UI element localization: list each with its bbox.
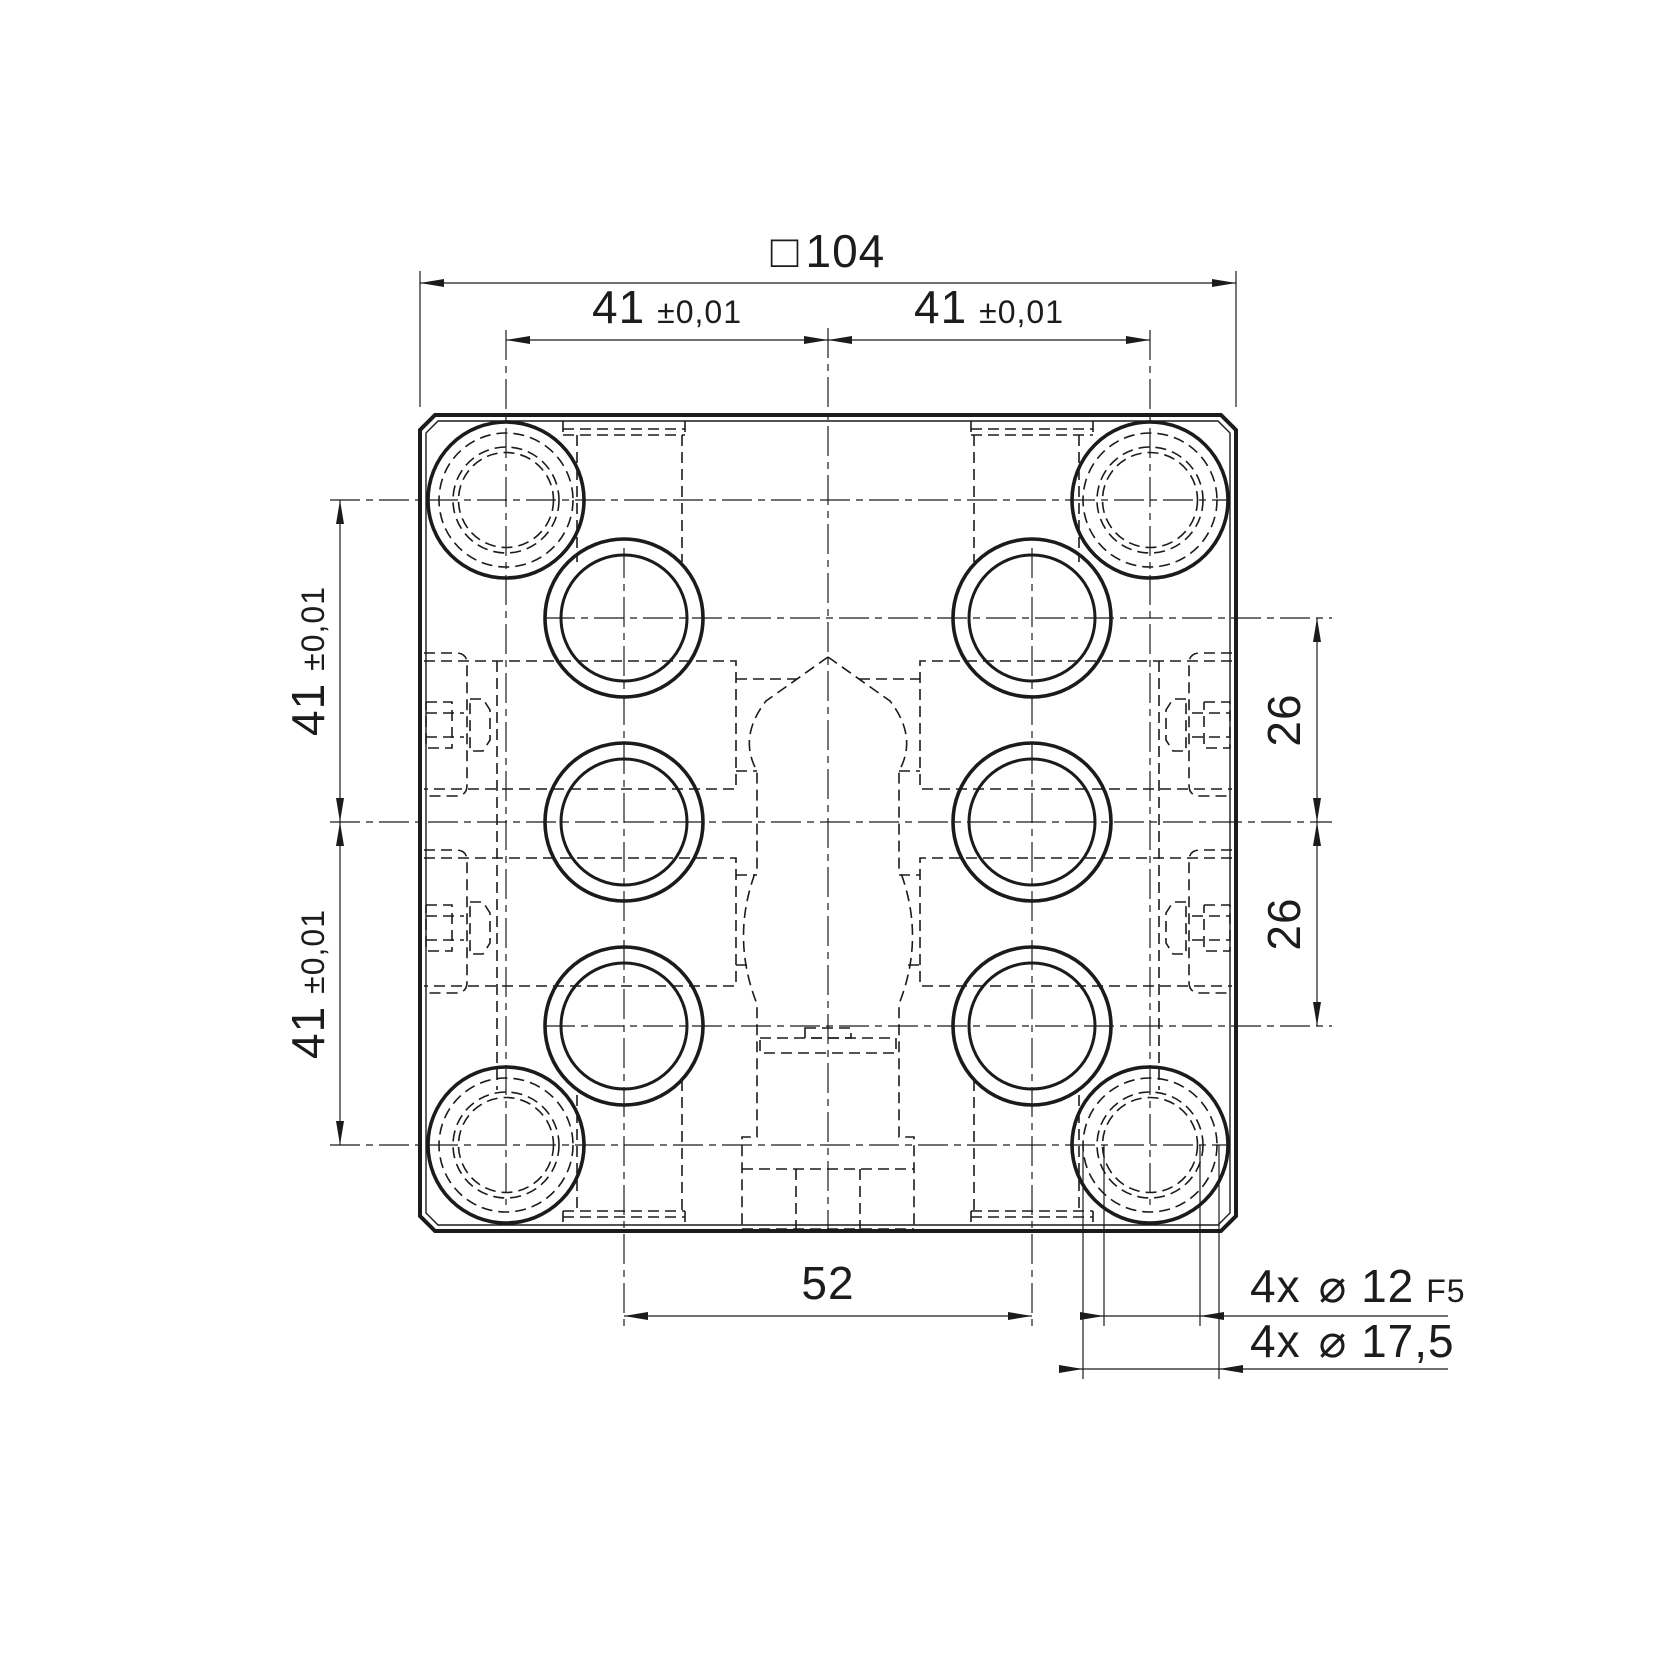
top-slot-right xyxy=(971,421,1093,435)
centerlines xyxy=(330,328,1332,1328)
side-socket-right-lower xyxy=(1166,902,1230,954)
dim-label-right-lower-26: 26 xyxy=(1258,897,1310,950)
arrowhead xyxy=(1008,1312,1032,1320)
arrowhead xyxy=(804,336,828,344)
drawing-canvas: □104 41±0,01 41±0,01 41±0,01 41±0,01 26 … xyxy=(0,0,1654,1654)
channel-top-left xyxy=(577,435,682,562)
pocket-left-lower xyxy=(424,858,736,986)
side-socket-right-upper xyxy=(1166,699,1230,751)
dim-label-d17-5: 4x⌀ 17,5 xyxy=(1250,1315,1455,1367)
dim-label-left-lower-41: 41±0,01 xyxy=(282,909,334,1059)
pocket-right-lower xyxy=(920,858,1232,986)
arrowhead xyxy=(624,1312,648,1320)
side-socket-left-lower xyxy=(426,902,490,954)
arrowhead xyxy=(1059,1365,1083,1373)
side-recess-right-upper xyxy=(1189,653,1232,796)
dim-label-top-left-41: 41±0,01 xyxy=(592,281,742,333)
dim-label-right-upper-26: 26 xyxy=(1258,693,1310,746)
arrowhead xyxy=(336,1121,344,1145)
dim-label-d12: 4x⌀ 12F5 xyxy=(1250,1260,1466,1312)
technical-drawing: □104 41±0,01 41±0,01 41±0,01 41±0,01 26 … xyxy=(0,0,1654,1654)
arrowhead xyxy=(1219,1365,1243,1373)
arrowhead xyxy=(506,336,530,344)
dim-label-overall: □104 xyxy=(771,225,886,277)
arrowhead xyxy=(1313,798,1321,822)
side-recess-left-upper xyxy=(424,653,467,796)
arrowhead xyxy=(1313,822,1321,846)
arrowhead xyxy=(1313,1002,1321,1026)
ext-lines-d12 xyxy=(1104,1145,1200,1326)
arrowhead xyxy=(1313,618,1321,642)
side-recess-right-lower xyxy=(1189,850,1232,993)
arrowhead xyxy=(336,500,344,524)
side-socket-left-upper xyxy=(426,699,490,751)
arrowhead xyxy=(1212,279,1236,287)
arrowhead xyxy=(1200,1312,1224,1320)
arrowhead xyxy=(1126,336,1150,344)
arrowhead xyxy=(336,798,344,822)
arrowhead xyxy=(420,279,444,287)
channel-top-right xyxy=(974,435,1079,562)
side-recess-left-lower xyxy=(424,850,467,993)
arrowhead xyxy=(336,822,344,846)
arrowhead xyxy=(828,336,852,344)
dim-label-top-right-41: 41±0,01 xyxy=(914,281,1064,333)
top-slot-left xyxy=(563,421,685,435)
dim-label-left-upper-41: 41±0,01 xyxy=(282,586,334,736)
dim-label-52: 52 xyxy=(801,1257,854,1309)
